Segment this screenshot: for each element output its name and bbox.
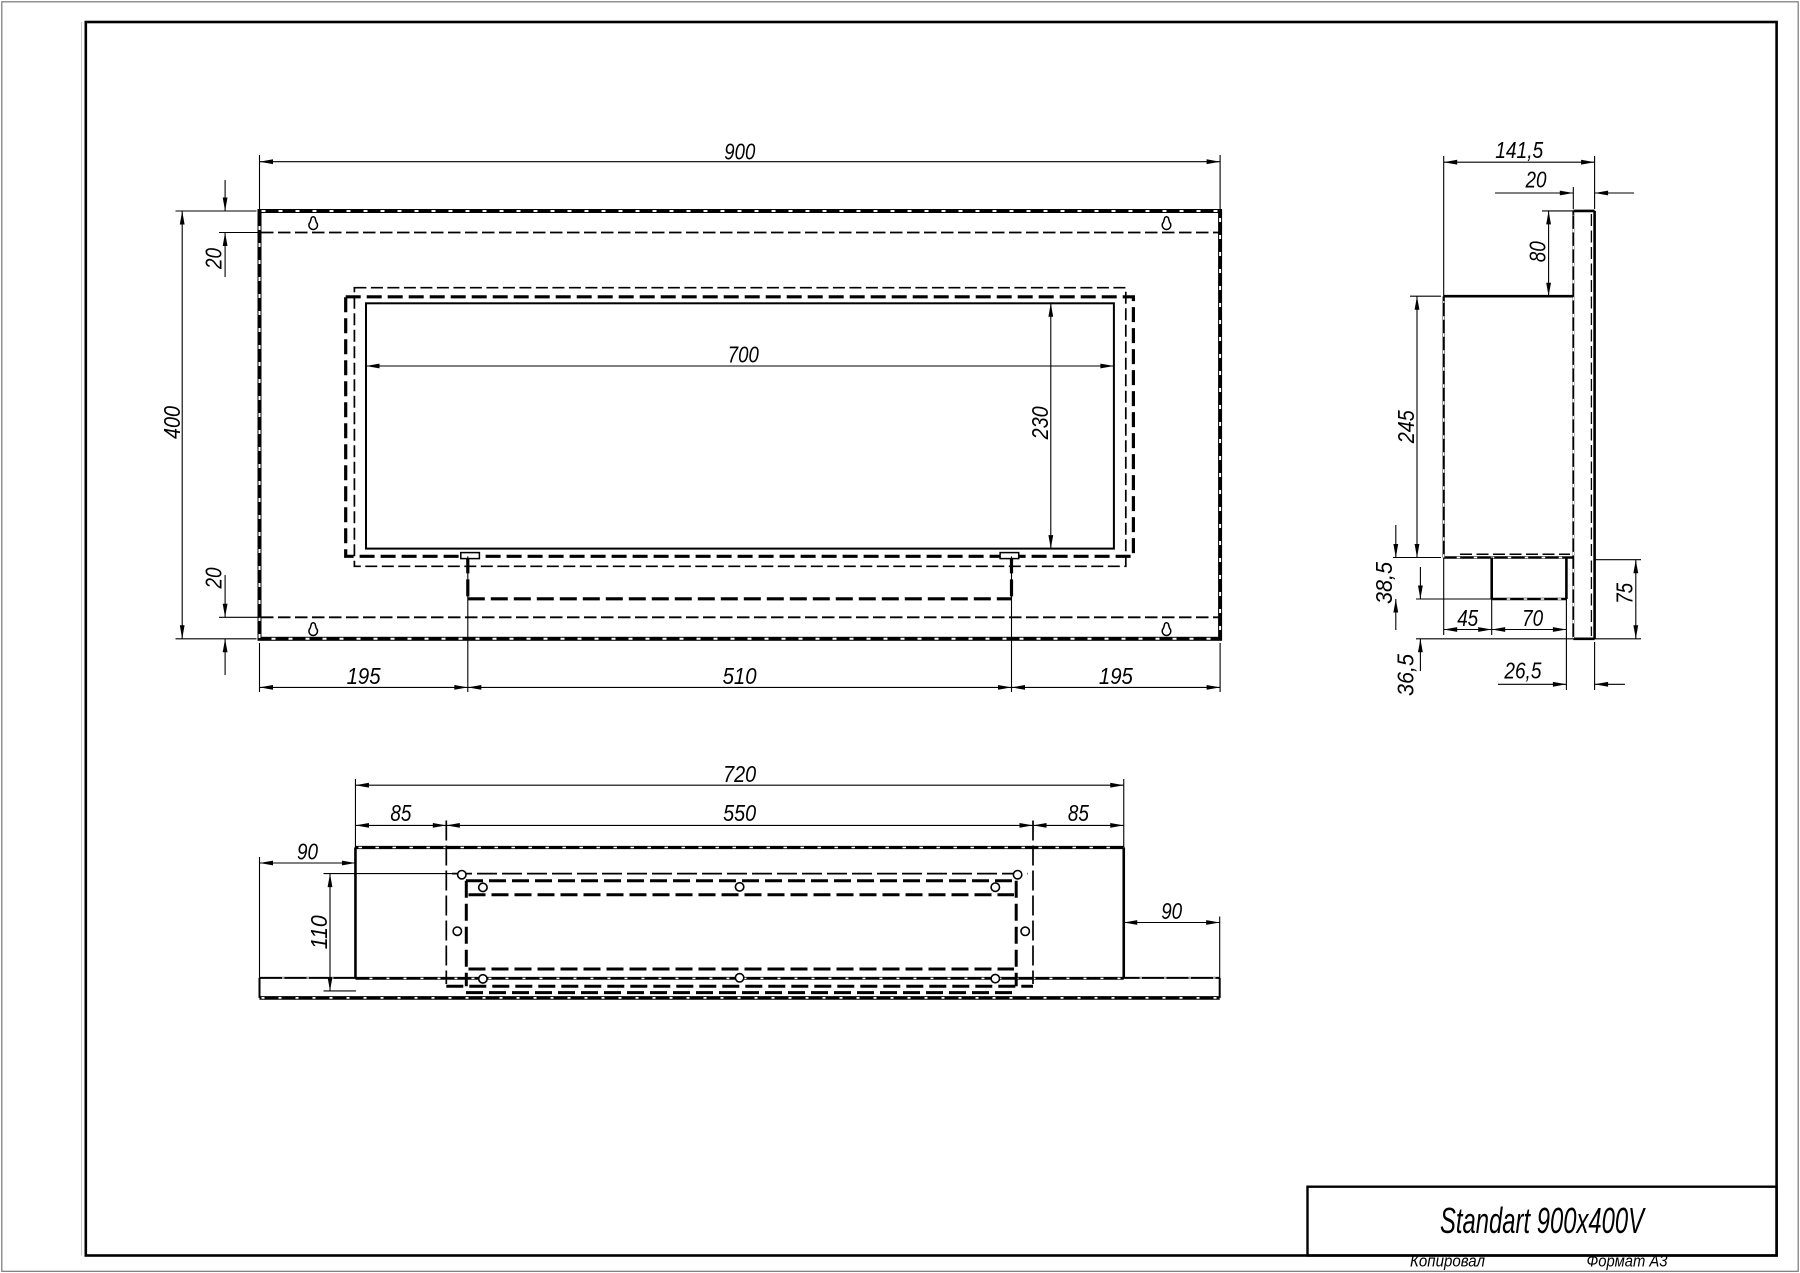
- svg-text:38,5: 38,5: [1371, 562, 1397, 604]
- svg-text:75: 75: [1612, 583, 1638, 604]
- svg-text:70: 70: [1522, 605, 1543, 631]
- svg-text:Standart 900x400V: Standart 900x400V: [1440, 1200, 1646, 1241]
- svg-text:400: 400: [159, 406, 185, 439]
- svg-text:110: 110: [306, 915, 332, 949]
- svg-text:245: 245: [1393, 410, 1419, 444]
- svg-text:195: 195: [347, 663, 381, 689]
- svg-text:36,5: 36,5: [1393, 654, 1419, 696]
- svg-text:Формат А3: Формат А3: [1587, 1252, 1668, 1271]
- svg-text:900: 900: [724, 138, 755, 164]
- svg-text:141,5: 141,5: [1495, 137, 1543, 163]
- svg-text:720: 720: [723, 761, 756, 787]
- svg-text:26,5: 26,5: [1504, 657, 1542, 683]
- svg-text:20: 20: [201, 567, 227, 589]
- svg-text:20: 20: [1525, 167, 1547, 193]
- svg-text:Копировал: Копировал: [1410, 1252, 1485, 1271]
- svg-text:510: 510: [723, 663, 757, 689]
- svg-text:20: 20: [201, 248, 227, 270]
- svg-text:90: 90: [297, 839, 318, 865]
- svg-text:700: 700: [728, 342, 759, 368]
- svg-text:550: 550: [723, 800, 756, 826]
- svg-text:90: 90: [1161, 898, 1182, 924]
- svg-text:45: 45: [1457, 605, 1478, 631]
- svg-text:195: 195: [1099, 663, 1133, 689]
- svg-text:80: 80: [1525, 241, 1551, 262]
- svg-text:85: 85: [1068, 800, 1089, 826]
- svg-text:230: 230: [1027, 406, 1053, 440]
- svg-text:85: 85: [390, 800, 411, 826]
